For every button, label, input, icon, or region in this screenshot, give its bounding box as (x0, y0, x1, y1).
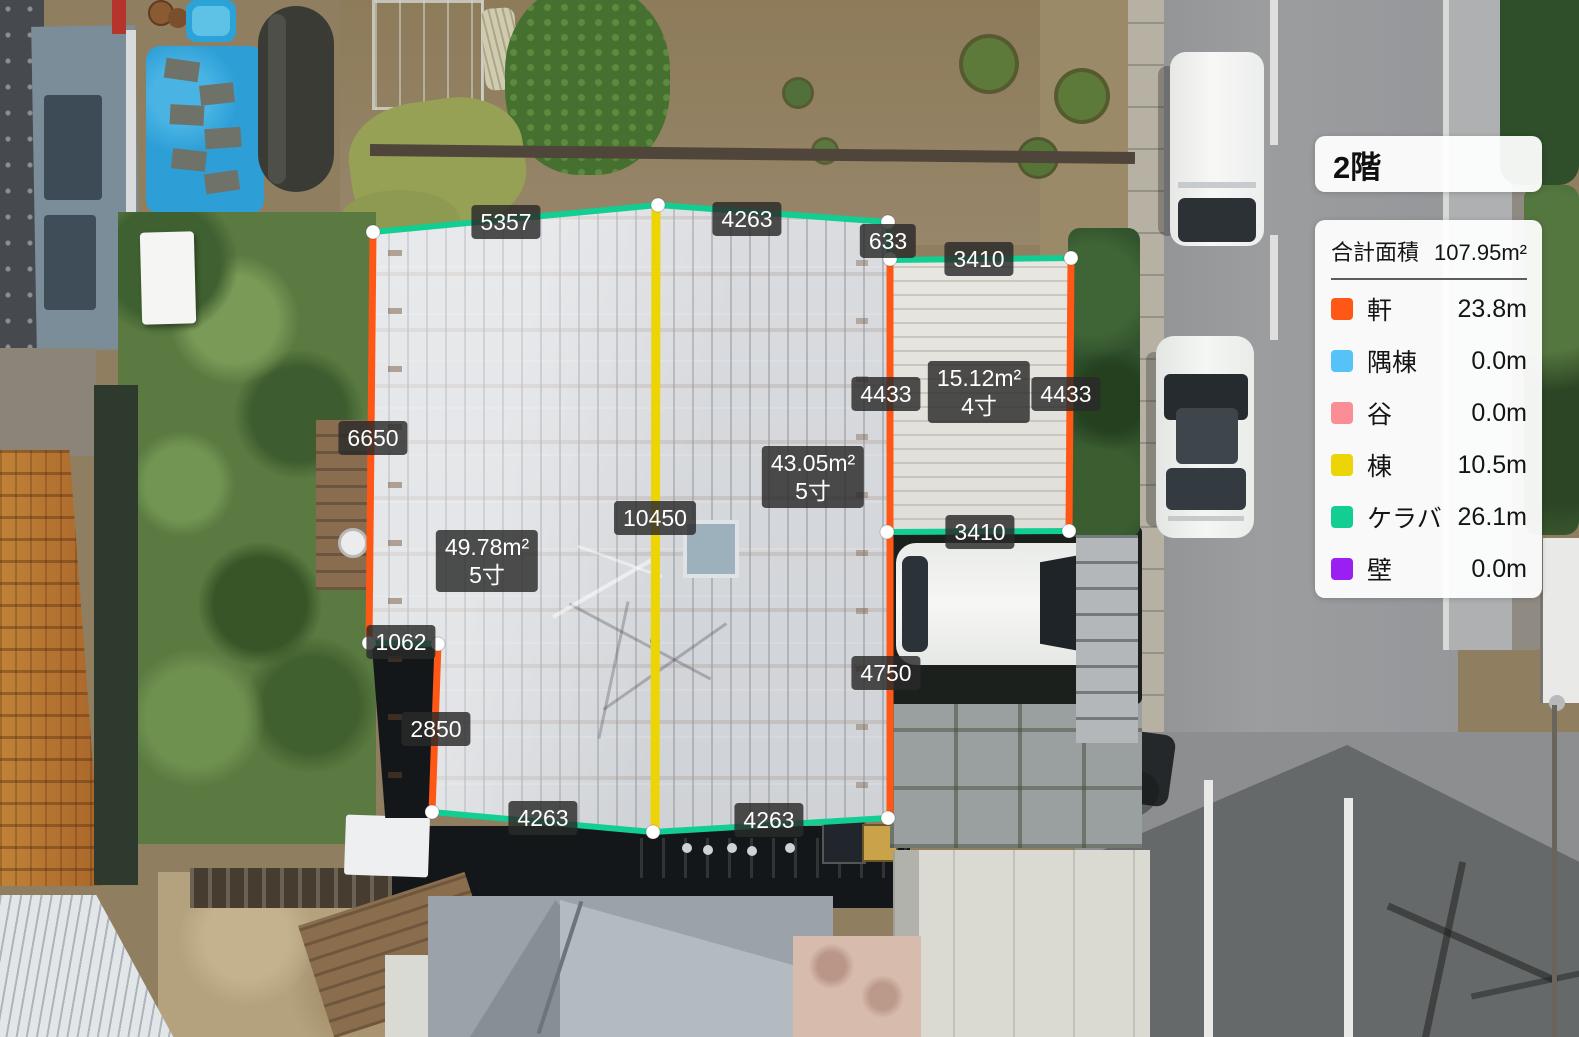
edge-gable[interactable] (653, 818, 888, 832)
vertex-handle[interactable] (883, 252, 897, 266)
eave-color-swatch (1331, 298, 1353, 320)
vertex-handle[interactable] (646, 825, 660, 839)
legend-item-value: 26.1m (1458, 503, 1527, 532)
legend-item-value: 0.0m (1471, 399, 1527, 428)
legend-item-value: 10.5m (1458, 451, 1527, 480)
legend-item-value: 0.0m (1471, 347, 1527, 376)
total-area-label: 合計面積 (1331, 235, 1419, 267)
vertex-handle[interactable] (880, 525, 894, 539)
roof-measurement-app: 5357426363334106650443315.12m²4寸443343.0… (0, 0, 1579, 1037)
vertex-handle[interactable] (366, 225, 380, 239)
legend-row-hip-ridge: 隅棟0.0m (1331, 335, 1527, 387)
legend-item-name: ケラバ (1367, 499, 1442, 535)
edge-gable[interactable] (887, 531, 1069, 532)
legend-item-name: 壁 (1367, 551, 1392, 587)
edge-ridge[interactable] (655, 207, 656, 830)
edge-eave[interactable] (432, 644, 438, 812)
floor-badge[interactable]: 2階 (1315, 136, 1542, 192)
legend-row-gable: ケラバ26.1m (1331, 491, 1527, 543)
legend-item-value: 0.0m (1471, 555, 1527, 584)
legend-item-value: 23.8m (1458, 295, 1527, 324)
vertex-handle[interactable] (362, 636, 376, 650)
legend-header: 合計面積 107.95m² (1331, 235, 1527, 278)
legend-item-name: 棟 (1367, 447, 1392, 483)
legend-item-name: 隅棟 (1367, 343, 1417, 379)
legend-row-valley: 谷0.0m (1331, 387, 1527, 439)
total-area-value: 107.95m² (1434, 240, 1527, 266)
edge-gable[interactable] (658, 205, 888, 222)
wall-color-swatch (1331, 558, 1353, 580)
edge-gable[interactable] (373, 205, 658, 232)
vertex-handle[interactable] (881, 215, 895, 229)
vertex-handle[interactable] (1062, 524, 1076, 538)
legend-item-name: 谷 (1367, 395, 1392, 431)
vertex-handle[interactable] (881, 811, 895, 825)
legend-row-wall: 壁0.0m (1331, 543, 1527, 595)
vertex-handle[interactable] (651, 198, 665, 212)
ridge-color-swatch (1331, 454, 1353, 476)
edge-eave[interactable] (369, 232, 373, 643)
hip-ridge-color-swatch (1331, 350, 1353, 372)
legend-panel: 合計面積 107.95m² 軒23.8m隅棟0.0m谷0.0m棟10.5mケラバ… (1315, 220, 1542, 598)
legend-row-eave: 軒23.8m (1331, 283, 1527, 335)
edge-eave[interactable] (1069, 258, 1071, 531)
edge-gable[interactable] (432, 812, 653, 832)
floor-title: 2階 (1333, 142, 1381, 187)
vertex-handle[interactable] (425, 805, 439, 819)
vertex-handle[interactable] (431, 637, 445, 651)
legend-row-ridge: 棟10.5m (1331, 439, 1527, 491)
edge-gable[interactable] (889, 258, 1071, 260)
gable-color-swatch (1331, 506, 1353, 528)
vertex-handle[interactable] (1064, 251, 1078, 265)
legend-divider (1331, 278, 1527, 280)
edge-gable[interactable] (369, 643, 438, 644)
legend-item-name: 軒 (1367, 291, 1392, 327)
legend-rows: 軒23.8m隅棟0.0m谷0.0m棟10.5mケラバ26.1m壁0.0m (1331, 283, 1527, 595)
valley-color-swatch (1331, 402, 1353, 424)
